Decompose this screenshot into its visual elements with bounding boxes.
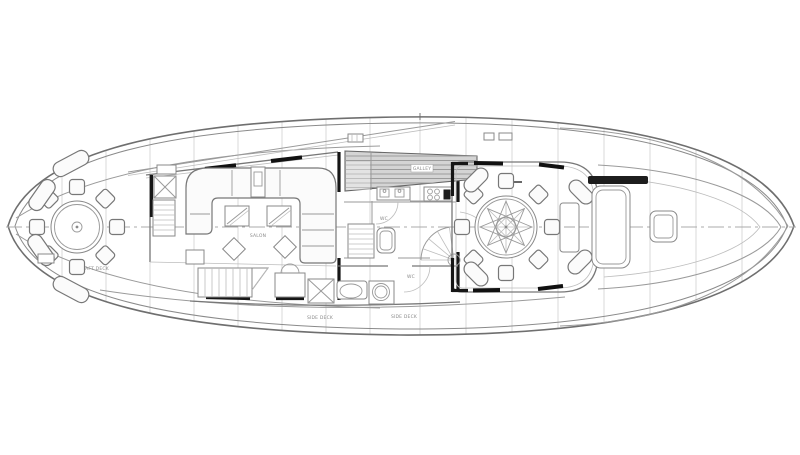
salon-label: SALON xyxy=(250,233,266,239)
chair xyxy=(110,220,125,235)
yacht-deck-plan: GALLEY xyxy=(0,0,800,455)
salon-cabinet xyxy=(186,250,204,264)
foredeck xyxy=(588,176,677,268)
chair xyxy=(30,220,45,235)
head-label: WC xyxy=(380,216,388,222)
pouf xyxy=(223,238,246,261)
vanity-cabinet xyxy=(275,273,305,297)
roof-vent-icon xyxy=(499,133,512,140)
chair xyxy=(70,180,85,195)
windshield-vent-bar xyxy=(588,176,648,184)
bath-label: WC xyxy=(407,274,415,280)
aft-deck-label: AFT DECK xyxy=(85,266,110,272)
deck-plan-canvas: GALLEY xyxy=(0,0,800,455)
chair xyxy=(455,220,470,235)
companionway-stairs xyxy=(348,224,374,258)
side-deck-right-label: SIDE DECK xyxy=(391,314,418,320)
mid-head-compartment xyxy=(376,202,398,253)
pouf xyxy=(274,236,297,259)
dining-window xyxy=(538,286,563,289)
aft-locker xyxy=(38,254,54,263)
chair xyxy=(70,260,85,275)
chair xyxy=(545,220,560,235)
dining-window xyxy=(473,290,500,291)
dining-window xyxy=(539,165,564,168)
bench xyxy=(51,148,92,179)
foredeck-console xyxy=(592,186,630,268)
entry-locker xyxy=(157,165,176,174)
salon xyxy=(186,167,336,264)
galley-counters xyxy=(377,187,452,201)
side-deck-steps xyxy=(198,268,268,297)
chair xyxy=(95,245,116,266)
port-entry-area xyxy=(153,165,176,236)
dining-window xyxy=(474,163,503,164)
roof-vent-icon xyxy=(484,133,494,140)
chair xyxy=(95,188,116,209)
chair xyxy=(499,266,514,281)
chair xyxy=(499,174,514,189)
bench xyxy=(51,274,92,305)
chair xyxy=(528,249,549,270)
sofa-side-table xyxy=(251,167,265,197)
side-deck-left-label: SIDE DECK xyxy=(307,315,334,321)
roof-vent-icon xyxy=(348,134,363,142)
sideboard-console xyxy=(560,203,579,252)
oven-icon xyxy=(444,190,451,200)
chair xyxy=(528,184,549,205)
salon-window xyxy=(271,157,302,161)
galley-label: GALLEY xyxy=(413,166,431,172)
